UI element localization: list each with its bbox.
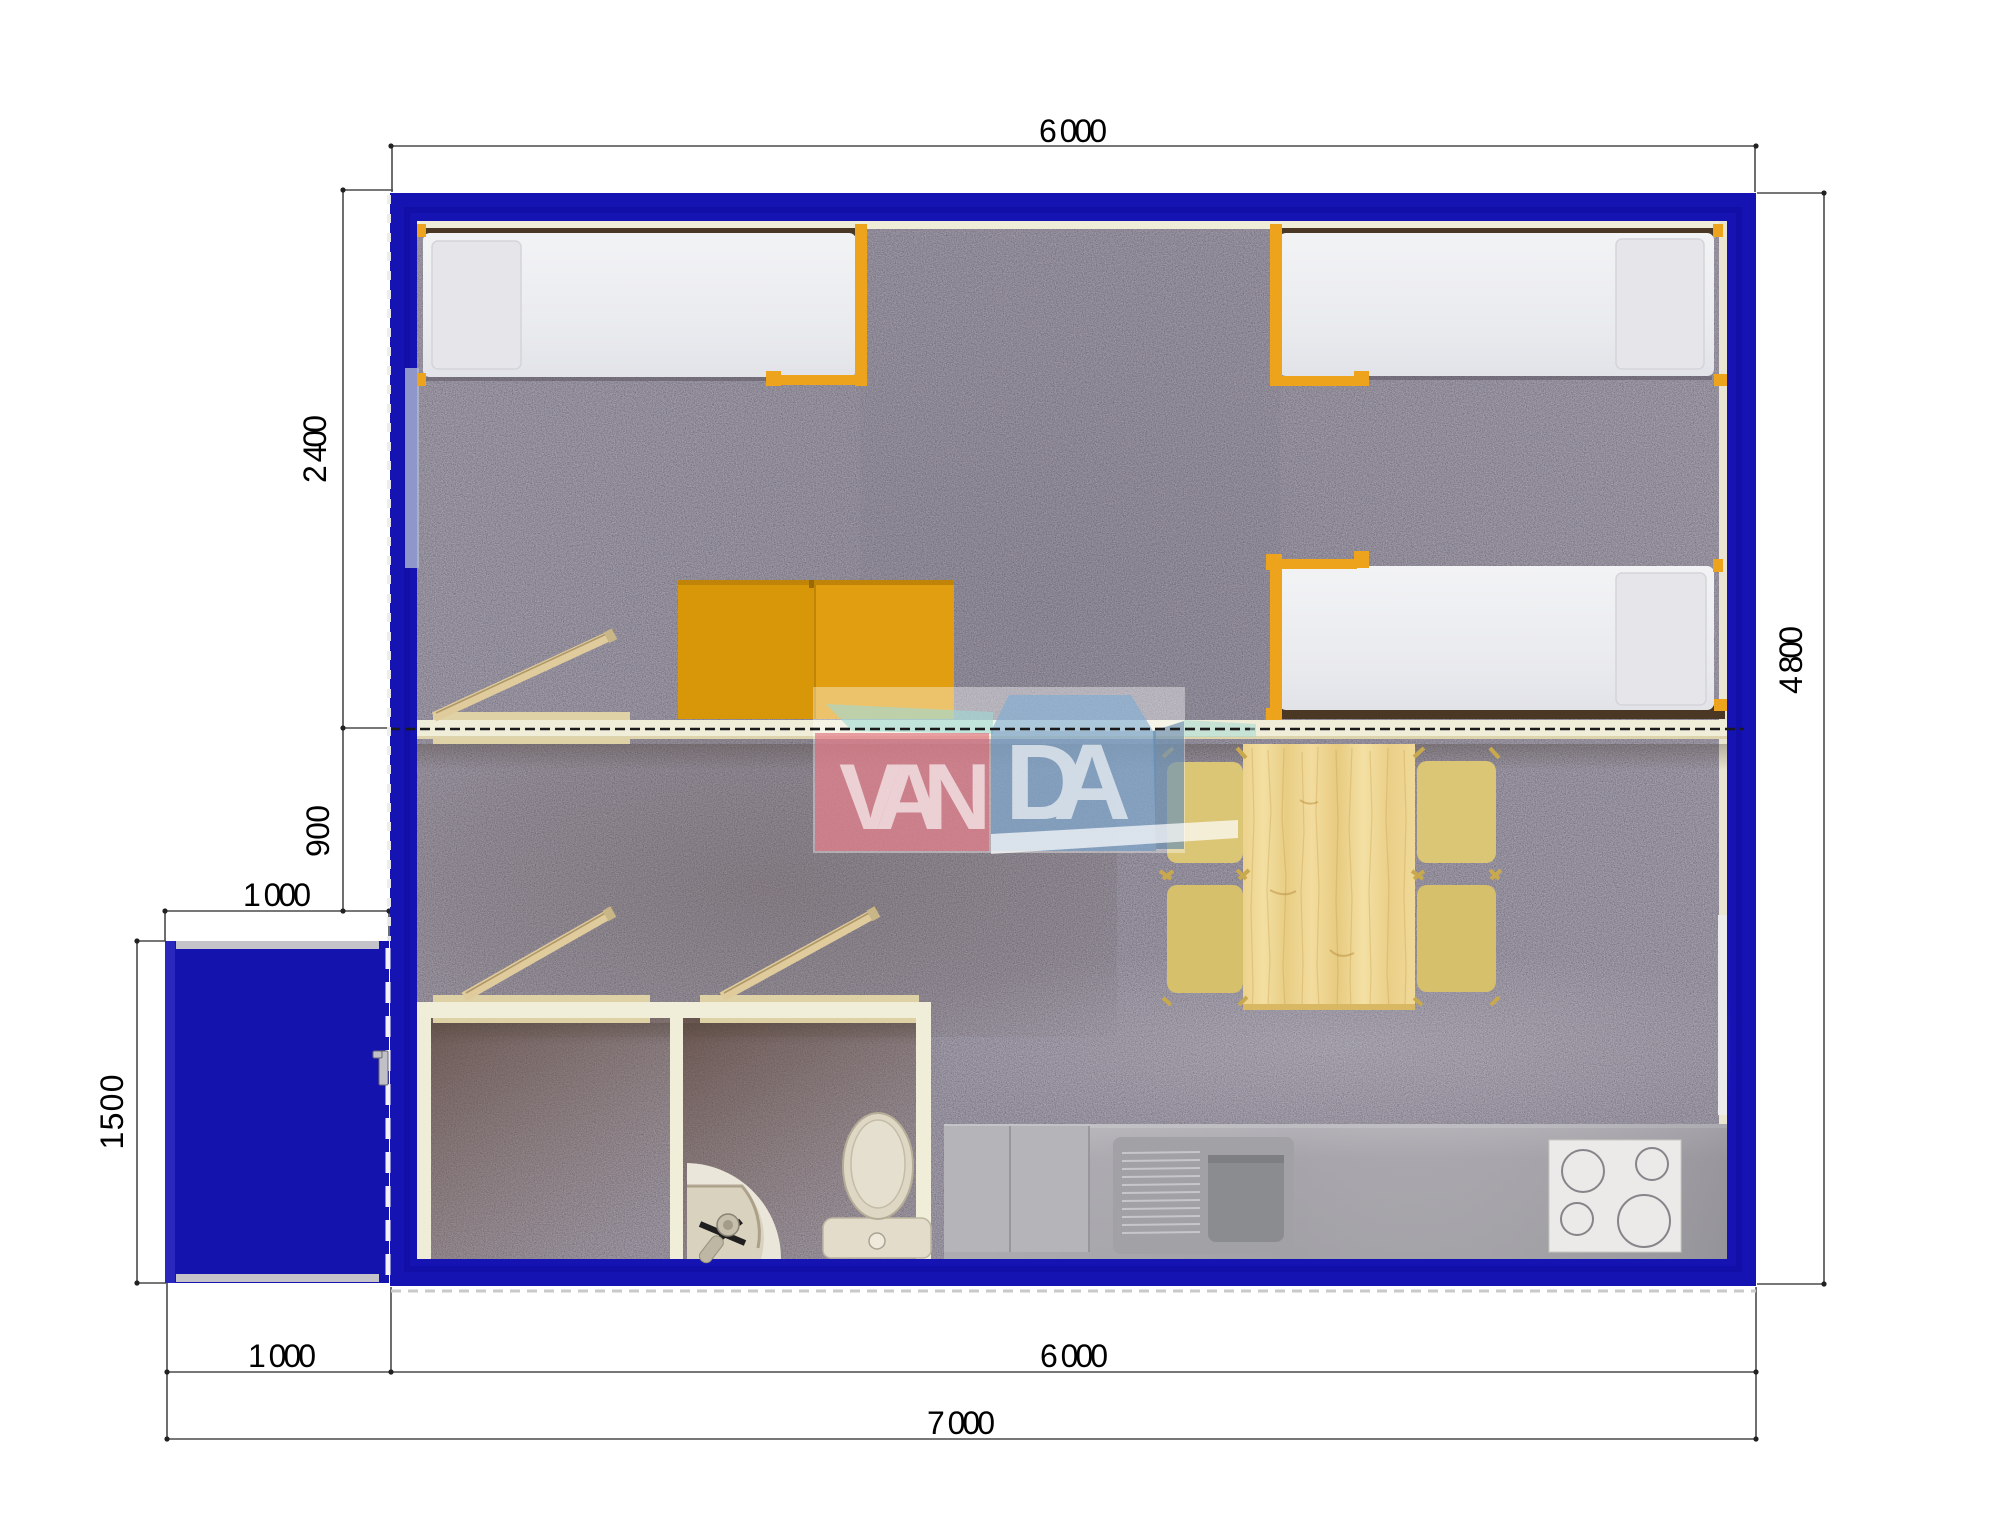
svg-text:1500: 1500 [94, 1075, 130, 1150]
svg-text:6 000: 6 000 [1040, 1338, 1108, 1374]
svg-text:VAN: VAN [839, 744, 991, 849]
svg-text:6 000: 6 000 [1039, 113, 1107, 149]
svg-text:900: 900 [300, 805, 336, 857]
svg-text:4 800: 4 800 [1773, 626, 1809, 694]
svg-text:2 400: 2 400 [297, 415, 333, 483]
svg-text:DA: DA [1005, 721, 1131, 842]
svg-text:7 000: 7 000 [927, 1405, 995, 1441]
svg-text:1 000: 1 000 [243, 877, 311, 913]
svg-text:1 000: 1 000 [248, 1338, 316, 1374]
